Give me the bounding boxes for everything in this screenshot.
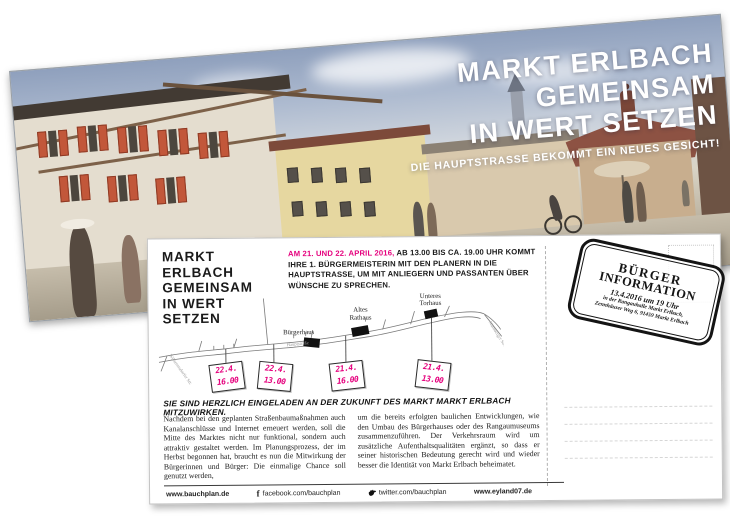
tag-time: 16.00 <box>331 373 364 389</box>
address-line <box>565 457 713 459</box>
body-column-2: um die bereits erfolgten baulichen Entwi… <box>357 411 540 479</box>
twitter-link: twitter.com/bauchplan <box>368 488 447 497</box>
window <box>335 167 347 183</box>
map-label-rathaus: Rathaus <box>350 315 372 322</box>
shuttered-window <box>155 176 187 204</box>
tag-time: 13.00 <box>258 374 291 389</box>
event-date-highlight: AM 21. UND 22. APRIL 2016, <box>288 248 395 258</box>
shuttered-window <box>59 174 91 202</box>
map-street-nuernberger: Nürnberger Str. <box>488 320 504 347</box>
body-column-1: Nachdem bei den geplanten Straßenbaumaßn… <box>163 413 346 481</box>
shuttered-window <box>117 125 149 153</box>
twitter-url: twitter.com/bauchplan <box>379 488 447 496</box>
twitter-icon <box>368 489 376 497</box>
map-label-buergerhaus: Bürgerhaus <box>283 329 315 336</box>
map-date-tag: 21.4. 16.00 <box>329 360 366 392</box>
address-line <box>564 423 712 425</box>
address-line <box>565 440 713 442</box>
window <box>291 201 303 217</box>
window <box>359 167 371 183</box>
facebook-icon: f <box>257 490 260 498</box>
shuttered-window <box>37 130 69 158</box>
website-bauchplan: www.bauchplan.de <box>166 490 229 498</box>
body-text: Nachdem bei den geplanten Straßenbaumaßn… <box>163 411 540 481</box>
postcard-divider <box>545 246 548 486</box>
shuttered-window <box>198 131 230 159</box>
shuttered-window <box>157 128 189 156</box>
facebook-link: f facebook.com/bauchplan <box>257 489 341 498</box>
back-title-line: GEMEINSAM <box>162 279 286 296</box>
map-date-tag: 22.4. 13.00 <box>257 361 294 392</box>
tag-time: 16.00 <box>211 374 244 390</box>
footer: www.bauchplan.de f facebook.com/bauchpla… <box>166 487 532 498</box>
window <box>364 201 376 217</box>
street-map: Bürgerhaus Altes Rathaus Unteres Torhaus… <box>158 292 504 397</box>
map-label-altes: Altes <box>353 307 368 314</box>
window <box>311 167 323 183</box>
window <box>316 201 328 217</box>
window <box>340 201 352 217</box>
map-date-tag: 22.4. 16.00 <box>208 361 245 393</box>
footer-rule <box>164 482 564 486</box>
address-line <box>564 406 712 408</box>
back-title-line: MARKT ERLBACH <box>162 248 286 280</box>
window <box>287 167 299 183</box>
map-label-torhaus: Torhaus <box>419 300 441 307</box>
shuttered-window <box>77 124 109 152</box>
back-card: MARKT ERLBACH GEMEINSAM IN WERT SETZEN A… <box>147 234 723 505</box>
facebook-url: facebook.com/bauchplan <box>263 489 341 497</box>
website-eyland07: www.eyland07.de <box>474 488 532 496</box>
event-intro-text: AM 21. UND 22. APRIL 2016, AB 13.00 BIS … <box>288 247 540 292</box>
map-date-tag: 21.4. 13.00 <box>415 359 452 391</box>
tag-time: 13.00 <box>416 372 449 388</box>
shuttered-window <box>107 174 139 202</box>
